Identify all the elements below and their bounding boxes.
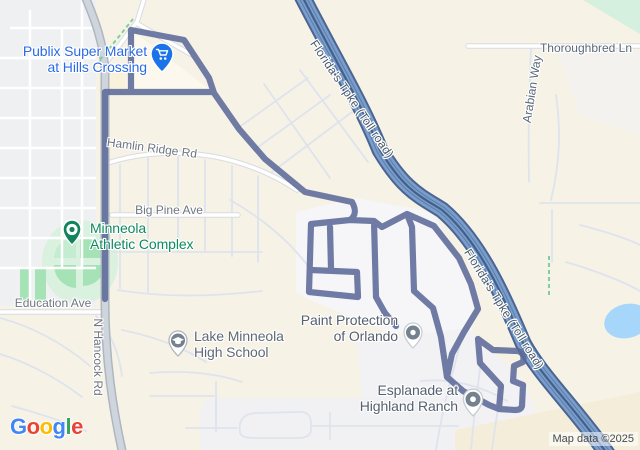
- graduation-cap-pin-icon[interactable]: [167, 330, 189, 363]
- poi-dot-pin-icon[interactable]: [402, 322, 424, 355]
- grocery-pin-icon[interactable]: [149, 42, 175, 79]
- map-canvas[interactable]: Hamlin Ridge Rd Big Pine Ave Education A…: [0, 0, 640, 450]
- logo-letter: g: [53, 414, 66, 439]
- logo-letter: o: [27, 414, 40, 439]
- road-label-thoroughbred: Thoroughbred Ln: [540, 41, 632, 55]
- logo-letter: o: [40, 414, 53, 439]
- logo-letter: e: [71, 414, 83, 439]
- poi-label-paint-protection[interactable]: Paint Protection of Orlando: [301, 312, 398, 344]
- poi-label-esplanade[interactable]: Esplanade at Highland Ranch: [360, 382, 458, 414]
- road-label-education: Education Ave: [15, 296, 92, 310]
- road-label-big-pine: Big Pine Ave: [135, 203, 203, 217]
- poi-label-minneola-athletic[interactable]: Minneola Athletic Complex: [90, 220, 193, 252]
- poi-label-lake-minneola-high[interactable]: Lake Minneola High School: [194, 328, 284, 360]
- poi-label-publix[interactable]: Publix Super Market at Hills Crossing: [23, 43, 147, 75]
- park-pin-icon[interactable]: [61, 219, 83, 252]
- logo-letter: G: [10, 414, 27, 439]
- road-label-n-hancock: N Hancock Rd: [91, 318, 105, 395]
- google-logo[interactable]: Google: [10, 414, 83, 440]
- map-attribution: Map data ©2025: [549, 432, 639, 446]
- poi-dot-pin-icon[interactable]: [461, 388, 485, 423]
